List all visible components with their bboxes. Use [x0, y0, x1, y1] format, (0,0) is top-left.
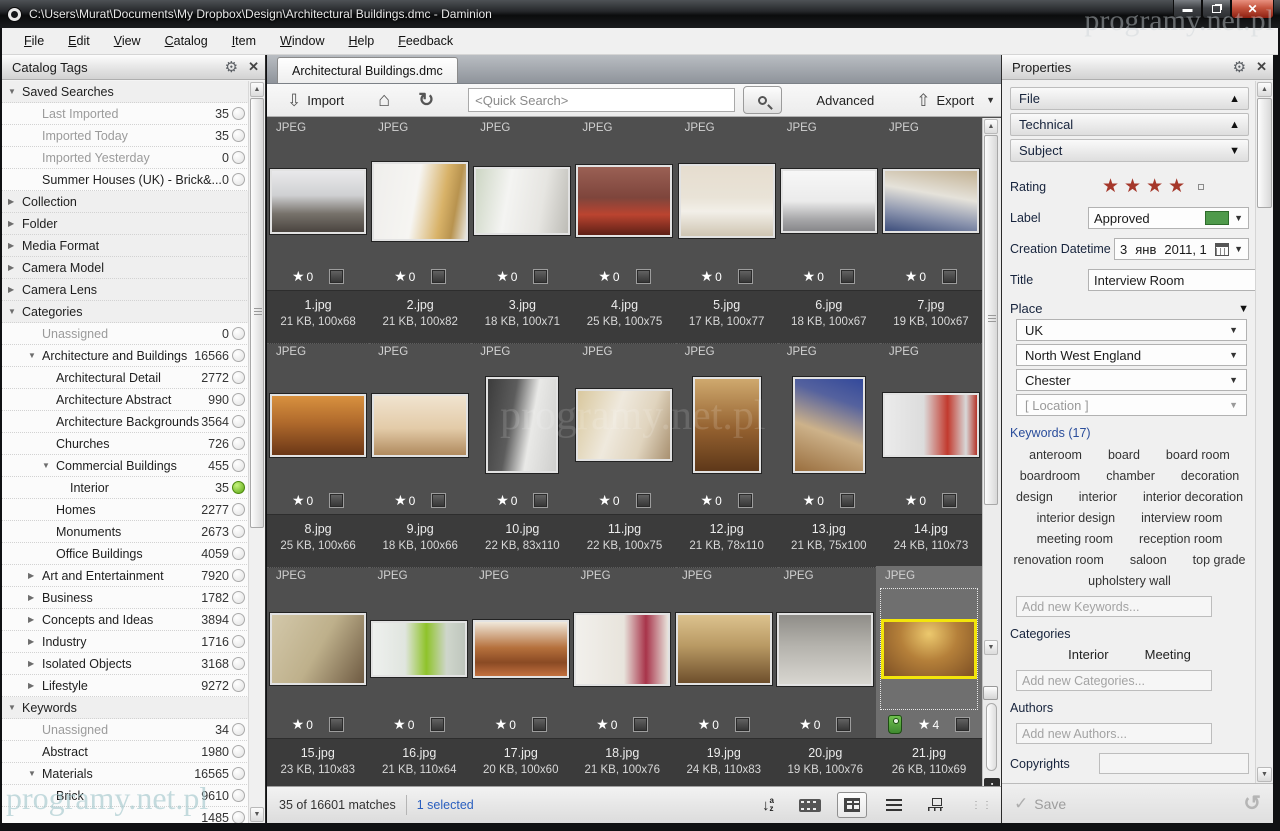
matches-count: 35 of 16601 matches	[279, 798, 396, 812]
tree-arrow-icon[interactable]: ▼	[28, 769, 42, 778]
tree-item[interactable]: Architecture Backgrounds 3564	[2, 411, 249, 433]
rating-stars[interactable]: ★0	[292, 268, 313, 285]
datetime-picker[interactable]: 3 янв 2011, 1 ▼	[1114, 238, 1249, 260]
tree-item[interactable]: Last Imported 35	[2, 103, 249, 125]
tree-item[interactable]: ▶ Camera Model	[2, 257, 249, 279]
tree-item-radio[interactable]	[232, 591, 245, 604]
select-checkbox[interactable]	[636, 493, 651, 508]
star-icon: ★	[799, 716, 812, 732]
tree-arrow-icon[interactable]: ▶	[28, 615, 42, 624]
select-checkbox[interactable]	[942, 493, 957, 508]
selected-count-link[interactable]: 1 selected	[417, 798, 474, 812]
tree-item-count: 9272	[201, 679, 229, 693]
place-header[interactable]: Place ▼	[1010, 301, 1249, 316]
tree-item-radio[interactable]	[232, 657, 245, 670]
tree-arrow-icon[interactable]: ▼	[28, 351, 42, 360]
star-icon: ★	[596, 716, 609, 732]
keyword-tag[interactable]: reception room	[1139, 532, 1222, 546]
thumbnail-image[interactable]	[270, 169, 366, 234]
tree-item-label: Abstract	[42, 745, 201, 759]
thumbnail-cell[interactable]: JPEG ★0 1.jpg 21 KB, 100x68	[267, 118, 369, 344]
thumbnail-image[interactable]	[693, 377, 761, 473]
add-categories-input[interactable]	[1016, 670, 1212, 691]
place-selects: UK ▼ North West England ▼ Chester ▼ [ Lo…	[1010, 319, 1249, 416]
thumbnail-image[interactable]	[372, 394, 468, 457]
file-type-label: JPEG	[572, 570, 674, 588]
tree-arrow-icon[interactable]: ▶	[28, 571, 42, 580]
tree-item[interactable]: ▶ Camera Lens	[2, 279, 249, 301]
tree-item[interactable]: ▶ Business 1782	[2, 587, 249, 609]
tree-item[interactable]: ▶ Collection	[2, 191, 249, 213]
keyword-tag[interactable]: design	[1016, 490, 1053, 504]
rating-stars[interactable]: ★0	[292, 716, 313, 733]
thumbnail-cell[interactable]: JPEG ★0 19.jpg 24 KB, 110x83	[673, 566, 775, 786]
place-select[interactable]: Chester ▼	[1016, 369, 1247, 391]
place-select[interactable]: UK ▼	[1016, 319, 1247, 341]
tree-arrow-icon[interactable]: ▶	[28, 593, 42, 602]
thumbnail-image[interactable]	[881, 619, 977, 679]
thumbnail-image[interactable]	[576, 165, 672, 237]
keyword-tag[interactable]: board	[1108, 448, 1140, 462]
tree-arrow-icon[interactable]: ▼	[42, 461, 56, 470]
tree-item-radio[interactable]	[232, 569, 245, 582]
section-technical[interactable]: Technical▲	[1010, 113, 1249, 136]
thumbnail-cell[interactable]: JPEG ★0 12.jpg 21 KB, 78x110	[676, 342, 778, 568]
scroll-down-icon[interactable]: ▼	[1257, 767, 1272, 782]
rating-stars[interactable]: ★★★★	[1102, 175, 1190, 198]
star-icon: ★	[701, 492, 714, 508]
select-checkbox[interactable]	[633, 717, 648, 732]
rating-stars[interactable]: ★0	[292, 492, 313, 509]
file-name: 3.jpg	[471, 298, 573, 312]
menu-item[interactable]: Window	[268, 30, 336, 52]
file-name: 13.jpg	[778, 522, 880, 536]
thumbnail-image[interactable]	[474, 167, 570, 235]
file-size-dimensions: 26 KB, 110x69	[876, 764, 982, 776]
tree-arrow-icon[interactable]: ▼	[8, 87, 22, 96]
select-checkbox[interactable]	[533, 493, 548, 508]
rating-stars[interactable]: ★0	[598, 492, 619, 509]
save-button[interactable]: Save	[1034, 796, 1066, 812]
thumbnail-image[interactable]	[883, 169, 979, 233]
file-caption: 8.jpg 25 KB, 100x66	[267, 514, 369, 568]
tree-item-label: Architecture Abstract	[56, 393, 208, 407]
file-name: 18.jpg	[572, 746, 674, 760]
home-button[interactable]: ⌂	[372, 87, 396, 113]
rating-stars[interactable]: ★0	[701, 492, 722, 509]
tree-item[interactable]: ▼ Keywords	[2, 697, 249, 719]
place-select[interactable]: North West England ▼	[1016, 344, 1247, 366]
tree-item[interactable]: ▼ Commercial Buildings 455	[2, 455, 249, 477]
thumbnail-size-track[interactable]	[986, 703, 997, 771]
tree-item-radio[interactable]	[232, 107, 245, 120]
tree-item[interactable]: Imported Yesterday 0	[2, 147, 249, 169]
tree-item-radio[interactable]	[232, 811, 245, 823]
resize-grip[interactable]: ⋮⋮	[971, 800, 993, 811]
tree-arrow-icon[interactable]: ▶	[28, 659, 42, 668]
scroll-down-icon[interactable]: ▼	[250, 807, 264, 822]
thumbnail-cell[interactable]: JPEG ★0 7.jpg 19 KB, 100x67	[880, 118, 982, 344]
tree-item-radio[interactable]	[232, 415, 245, 428]
menu-item[interactable]: View	[102, 30, 153, 52]
select-checkbox[interactable]	[329, 493, 344, 508]
thumbnail-size-slider[interactable]	[983, 686, 998, 700]
thumbnail-cell[interactable]: JPEG ★0 13.jpg 21 KB, 75x100	[778, 342, 880, 568]
select-checkbox[interactable]	[430, 717, 445, 732]
star-count: 0	[611, 718, 618, 732]
rating-stars[interactable]: ★0	[394, 268, 415, 285]
tree-item[interactable]: Unassigned 0	[2, 323, 249, 345]
list-view-button[interactable]	[879, 792, 909, 818]
keyword-tag[interactable]: board room	[1166, 448, 1230, 462]
tree-arrow-icon[interactable]: ▶	[8, 197, 22, 206]
star-count: 0	[511, 494, 518, 508]
menu-item[interactable]: Catalog	[153, 30, 220, 52]
window-title: C:\Users\Murat\Documents\My Dropbox\Desi…	[29, 7, 492, 21]
thumbnail-image[interactable]	[781, 169, 877, 233]
thumbnail-image[interactable]	[777, 613, 873, 686]
tree-item[interactable]: Office Buildings 4059	[2, 543, 249, 565]
tree-item-label: Brick	[56, 789, 201, 803]
select-checkbox[interactable]	[836, 717, 851, 732]
rating-stars[interactable]: ★0	[496, 268, 517, 285]
thumbnail-image[interactable]	[486, 377, 558, 473]
gear-icon[interactable]: ⚙	[225, 58, 238, 76]
tree-item[interactable]: Homes 2277	[2, 499, 249, 521]
thumbnail-cell[interactable]: JPEG ★0 14.jpg 24 KB, 110x73	[880, 342, 982, 568]
scroll-up-icon[interactable]: ▲	[250, 82, 264, 97]
tree-item-label: Folder	[22, 217, 242, 231]
tree-arrow-icon[interactable]: ▼	[8, 703, 22, 712]
tree-item-radio[interactable]	[232, 481, 245, 494]
label-dropdown[interactable]: Approved ▼	[1088, 207, 1249, 229]
tree-item[interactable]: ▶ Concepts and Ideas 3894	[2, 609, 249, 631]
menu-item[interactable]: Item	[220, 30, 268, 52]
file-size-dimensions: 21 KB, 100x82	[369, 316, 471, 328]
tree-item[interactable]: ▶ Folder	[2, 213, 249, 235]
rating-star-empty[interactable]	[1198, 184, 1204, 190]
thumbnail-cell[interactable]: JPEG ★0 20.jpg 19 KB, 100x76	[775, 566, 877, 786]
tree-item-radio[interactable]	[232, 371, 245, 384]
tree-item[interactable]: Summer Houses (UK) - Brick&... 0	[2, 169, 249, 191]
thumbnail-image[interactable]	[371, 621, 467, 677]
section-subject[interactable]: Subject▼	[1010, 139, 1249, 162]
keyword-tag[interactable]: saloon	[1130, 553, 1167, 567]
tree-arrow-icon[interactable]: ▼	[8, 307, 22, 316]
properties-header: Properties ⚙ ✕	[1002, 55, 1273, 80]
star-icon: ★	[905, 268, 918, 284]
rating-stars[interactable]: ★0	[698, 716, 719, 733]
tree-item-radio[interactable]	[232, 789, 245, 802]
tree-arrow-icon[interactable]: ▶	[8, 263, 22, 272]
tree-item[interactable]: 1485	[2, 807, 249, 823]
star-icon: ★	[292, 268, 305, 284]
tree-item[interactable]: Churches 726	[2, 433, 249, 455]
rating-stars[interactable]: ★0	[803, 492, 824, 509]
keywords-count-link[interactable]: Keywords (17)	[1010, 426, 1249, 440]
tree-item[interactable]: Abstract 1980	[2, 741, 249, 763]
tree-item-count: 16565	[194, 767, 229, 781]
scroll-up-icon[interactable]: ▲	[1257, 82, 1272, 97]
tree-item[interactable]: ▶ Industry 1716	[2, 631, 249, 653]
tree-item-count: 1716	[201, 635, 229, 649]
thumbnail-cell[interactable]: JPEG ★0 11.jpg 22 KB, 100x75	[573, 342, 675, 568]
import-button[interactable]: ⇩ Import	[281, 89, 350, 112]
tree-item-label: Last Imported	[42, 107, 215, 121]
menu-item[interactable]: File	[12, 30, 56, 52]
catalog-tree-scrollbar[interactable]: ▲ ▼	[248, 81, 265, 823]
thumbnail-image[interactable]	[473, 620, 569, 678]
tree-arrow-icon[interactable]: ▶	[28, 681, 42, 690]
tree-item[interactable]: ▼ Categories	[2, 301, 249, 323]
file-name: 2.jpg	[369, 298, 471, 312]
scrollbar-thumb[interactable]	[1257, 98, 1272, 208]
thumbnail-image[interactable]	[679, 164, 775, 238]
tree-item-count: 726	[208, 437, 229, 451]
close-button[interactable]: ✕	[1231, 0, 1274, 19]
select-checkbox[interactable]	[942, 269, 957, 284]
undo-icon[interactable]: ↺	[1243, 791, 1261, 816]
category-tag[interactable]: Interior	[1068, 647, 1108, 662]
thumbnail-cell[interactable]: JPEG ★0 9.jpg 18 KB, 100x66	[369, 342, 471, 568]
keyword-tag[interactable]: anteroom	[1029, 448, 1082, 462]
scrollbar-thumb[interactable]	[984, 135, 998, 505]
tree-item-radio[interactable]	[232, 635, 245, 648]
chevron-down-icon: ▼	[1234, 244, 1243, 254]
select-checkbox[interactable]	[738, 269, 753, 284]
keyword-tag[interactable]: interior	[1079, 490, 1117, 504]
rating-stars[interactable]: ★0	[393, 716, 414, 733]
properties-scrollbar[interactable]: ▲ ▼	[1255, 81, 1273, 783]
tree-arrow-icon[interactable]: ▶	[8, 219, 22, 228]
tree-item[interactable]: ▶ Isolated Objects 3168	[2, 653, 249, 675]
thumbnail-cell[interactable]: JPEG ★4 21.jpg 26 KB, 110x69	[876, 566, 982, 786]
select-checkbox[interactable]	[738, 493, 753, 508]
sort-button[interactable]: ↓az	[753, 792, 783, 818]
menu-item[interactable]: Edit	[56, 30, 102, 52]
rating-stars[interactable]: ★0	[496, 492, 517, 509]
keyword-tag[interactable]: interior decoration	[1143, 490, 1243, 504]
export-button[interactable]: ⇧ Export ▼	[910, 89, 1001, 112]
tree-item[interactable]: Architecture Abstract 990	[2, 389, 249, 411]
star-count: 0	[509, 718, 516, 732]
tree-item-radio[interactable]	[232, 613, 245, 626]
tree-item-radio[interactable]	[232, 459, 245, 472]
keyword-tag[interactable]: upholstery wall	[1088, 574, 1171, 588]
grid-view-button[interactable]	[837, 792, 867, 818]
select-checkbox[interactable]	[431, 493, 446, 508]
rating-stars[interactable]: ★0	[495, 716, 516, 733]
menu-item[interactable]: Help	[337, 30, 387, 52]
tree-item-radio[interactable]	[232, 767, 245, 780]
keyword-tag[interactable]: chamber	[1106, 469, 1155, 483]
select-checkbox[interactable]	[329, 269, 344, 284]
file-name: 17.jpg	[470, 746, 572, 760]
select-checkbox[interactable]	[735, 717, 750, 732]
thumbnail-cell[interactable]: JPEG ★0 15.jpg 23 KB, 110x83	[267, 566, 369, 786]
rating-stars[interactable]: ★4	[918, 716, 939, 733]
tree-item[interactable]: ▶ Media Format	[2, 235, 249, 257]
rating-stars[interactable]: ★0	[394, 492, 415, 509]
filmstrip-view-button[interactable]	[795, 792, 825, 818]
file-name: 4.jpg	[573, 298, 675, 312]
add-keywords-input[interactable]	[1016, 596, 1212, 617]
thumbnail-cell[interactable]: JPEG ★0 4.jpg 25 KB, 100x75	[573, 118, 675, 344]
tree-item[interactable]: Architectural Detail 2772	[2, 367, 249, 389]
tree-item-count: 2277	[201, 503, 229, 517]
export-label: Export	[937, 93, 975, 108]
category-tag[interactable]: Meeting	[1145, 647, 1191, 662]
tree-item-radio[interactable]	[232, 525, 245, 538]
file-size-dimensions: 17 KB, 100x77	[676, 316, 778, 328]
tree-item[interactable]: ▶ Lifestyle 9272	[2, 675, 249, 697]
keyword-tag[interactable]: interview room	[1141, 511, 1222, 525]
thumbnail-image[interactable]	[883, 393, 979, 457]
tree-item[interactable]: ▶ Art and Entertainment 7920	[2, 565, 249, 587]
tree-item-radio[interactable]	[232, 679, 245, 692]
tab-catalog[interactable]: Architectural Buildings.dmc	[277, 57, 458, 83]
keyword-tag[interactable]: top grade	[1193, 553, 1246, 567]
details-view-button[interactable]	[921, 792, 951, 818]
thumbnail-image[interactable]	[270, 613, 366, 685]
file-size-dimensions: 18 KB, 100x67	[778, 316, 880, 328]
tree-item[interactable]: ▼ Architecture and Buildings 16566	[2, 345, 249, 367]
tree-item[interactable]: Brick 9610	[2, 785, 249, 807]
tree-item[interactable]: Imported Today 35	[2, 125, 249, 147]
tree-arrow-icon[interactable]: ▶	[8, 285, 22, 294]
file-size-dimensions: 19 KB, 100x76	[775, 764, 877, 776]
tree-item-radio[interactable]	[232, 503, 245, 516]
scroll-up-icon[interactable]: ▲	[984, 119, 998, 134]
section-file[interactable]: File▲	[1010, 87, 1249, 110]
tree-item-radio[interactable]	[232, 349, 245, 362]
thumbnail-image[interactable]	[270, 394, 366, 457]
select-checkbox[interactable]	[955, 717, 970, 732]
tree-item-radio[interactable]	[232, 327, 245, 340]
tree-item[interactable]: ▼ Materials 16565	[2, 763, 249, 785]
thumbnail-cell[interactable]: JPEG ★0 6.jpg 18 KB, 100x67	[778, 118, 880, 344]
gear-icon[interactable]: ⚙	[1233, 58, 1246, 76]
tree-item-radio[interactable]	[232, 151, 245, 164]
refresh-button[interactable]: ↻	[412, 88, 440, 113]
tree-item[interactable]: Monuments 2673	[2, 521, 249, 543]
close-icon[interactable]: ✕	[248, 59, 259, 75]
add-authors-input[interactable]	[1016, 723, 1212, 744]
file-size-dimensions: 19 KB, 100x67	[880, 316, 982, 328]
tree-item-radio[interactable]	[232, 547, 245, 560]
tree-item-label: Architectural Detail	[56, 371, 201, 385]
tree-item-count: 2772	[201, 371, 229, 385]
file-type-label: JPEG	[369, 570, 471, 588]
menu-item[interactable]: Feedback	[386, 30, 465, 52]
file-caption: 17.jpg 20 KB, 100x60	[470, 738, 572, 786]
select-checkbox[interactable]	[636, 269, 651, 284]
keyword-tag[interactable]: renovation room	[1014, 553, 1104, 567]
rating-stars[interactable]: ★0	[799, 716, 820, 733]
scroll-down-icon[interactable]: ▼	[984, 640, 998, 655]
restore-button[interactable]	[1202, 0, 1231, 19]
close-icon[interactable]: ✕	[1256, 59, 1267, 75]
tree-arrow-icon[interactable]: ▶	[8, 241, 22, 250]
thumbnail-cell[interactable]: JPEG ★0 3.jpg 18 KB, 100x71	[471, 118, 573, 344]
file-size-dimensions: 21 KB, 78x110	[676, 540, 778, 552]
tree-item-label: Homes	[56, 503, 201, 517]
thumbnail-cell[interactable]: JPEG ★0 18.jpg 21 KB, 100x76	[572, 566, 674, 786]
thumbnail-cell[interactable]: JPEG ★0 8.jpg 25 KB, 100x66	[267, 342, 369, 568]
thumbnail-image[interactable]	[676, 613, 772, 685]
tree-item[interactable]: Unassigned 34	[2, 719, 249, 741]
select-checkbox[interactable]	[840, 269, 855, 284]
tree-item-radio[interactable]	[232, 129, 245, 142]
tree-item-radio[interactable]	[232, 393, 245, 406]
tree-item-radio[interactable]	[232, 745, 245, 758]
tree-item[interactable]: Interior 35	[2, 477, 249, 499]
thumbnail-image[interactable]	[793, 377, 865, 473]
grid-scrollbar[interactable]: ▲ ▼ i	[982, 118, 1001, 786]
rating-stars[interactable]: ★0	[598, 268, 619, 285]
minimize-button[interactable]: ▬	[1173, 0, 1202, 19]
star-count: 0	[511, 270, 518, 284]
filmstrip-view-icon	[799, 799, 821, 812]
thumbnail-image[interactable]	[576, 389, 672, 461]
rating-stars[interactable]: ★0	[905, 492, 926, 509]
select-checkbox[interactable]	[431, 269, 446, 284]
quick-search-input[interactable]	[468, 88, 735, 112]
keyword-tag[interactable]: interior design	[1037, 511, 1116, 525]
select-checkbox[interactable]	[840, 493, 855, 508]
file-caption: 11.jpg 22 KB, 100x75	[573, 514, 675, 568]
thumbnail-image[interactable]	[574, 613, 670, 686]
file-type-label: JPEG	[778, 346, 880, 364]
tree-item-radio[interactable]	[232, 723, 245, 736]
scrollbar-thumb[interactable]	[250, 98, 264, 528]
tree-item-radio[interactable]	[232, 173, 245, 186]
calendar-icon[interactable]	[1215, 243, 1229, 256]
thumbnail-cell[interactable]: JPEG ★0 5.jpg 17 KB, 100x77	[676, 118, 778, 344]
star-icon: ★	[496, 268, 509, 284]
rating-stars[interactable]: ★0	[596, 716, 617, 733]
thumbnail-image[interactable]	[372, 162, 468, 241]
tree-item[interactable]: ▼ Saved Searches	[2, 81, 249, 103]
tree-item-count: 2673	[201, 525, 229, 539]
search-button[interactable]	[743, 86, 782, 114]
file-size-dimensions: 21 KB, 100x76	[572, 764, 674, 776]
thumbnail-cell[interactable]: JPEG ★0 17.jpg 20 KB, 100x60	[470, 566, 572, 786]
star-count: 0	[919, 270, 926, 284]
keyword-tag[interactable]: meeting room	[1037, 532, 1113, 546]
advanced-search-button[interactable]: Advanced	[810, 90, 880, 111]
thumbnail-cell[interactable]: JPEG ★0 16.jpg 21 KB, 110x64	[369, 566, 471, 786]
rating-stars[interactable]: ★0	[803, 268, 824, 285]
tree-item-count: 990	[208, 393, 229, 407]
place-select[interactable]: [ Location ] ▼	[1016, 394, 1247, 416]
select-checkbox[interactable]	[329, 717, 344, 732]
label-label: Label	[1010, 211, 1088, 225]
keyword-tag[interactable]: decoration	[1181, 469, 1239, 483]
keywords-cloud: anteroomboardboard roomboardroomchamberd…	[1010, 448, 1249, 588]
rating-stars[interactable]: ★0	[905, 268, 926, 285]
keyword-tag[interactable]: boardroom	[1020, 469, 1080, 483]
rating-stars[interactable]: ★0	[701, 268, 722, 285]
select-checkbox[interactable]	[532, 717, 547, 732]
select-checkbox[interactable]	[533, 269, 548, 284]
title-input[interactable]	[1088, 269, 1255, 291]
tree-item-radio[interactable]	[232, 437, 245, 450]
copyrights-input[interactable]	[1099, 753, 1249, 774]
thumbnail-cell[interactable]: JPEG ★0 2.jpg 21 KB, 100x82	[369, 118, 471, 344]
tree-arrow-icon[interactable]: ▶	[28, 637, 42, 646]
thumbnail-cell[interactable]: JPEG ★0 10.jpg 22 KB, 83x110	[471, 342, 573, 568]
